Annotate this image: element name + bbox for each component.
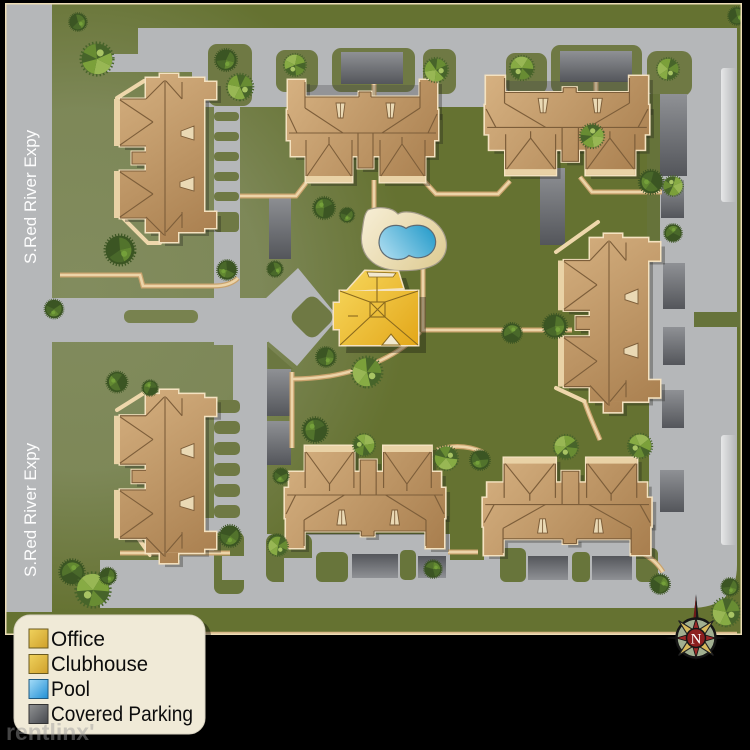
svg-text:rentlinx': rentlinx' <box>6 719 95 745</box>
svg-text:Clubhouse: Clubhouse <box>51 652 148 676</box>
svg-text:S.Red River Expy: S.Red River Expy <box>21 442 40 577</box>
svg-text:Pool: Pool <box>51 677 90 701</box>
svg-text:S.Red River Expy: S.Red River Expy <box>21 129 40 264</box>
svg-text:Office: Office <box>51 627 105 651</box>
svg-text:N: N <box>691 632 702 648</box>
